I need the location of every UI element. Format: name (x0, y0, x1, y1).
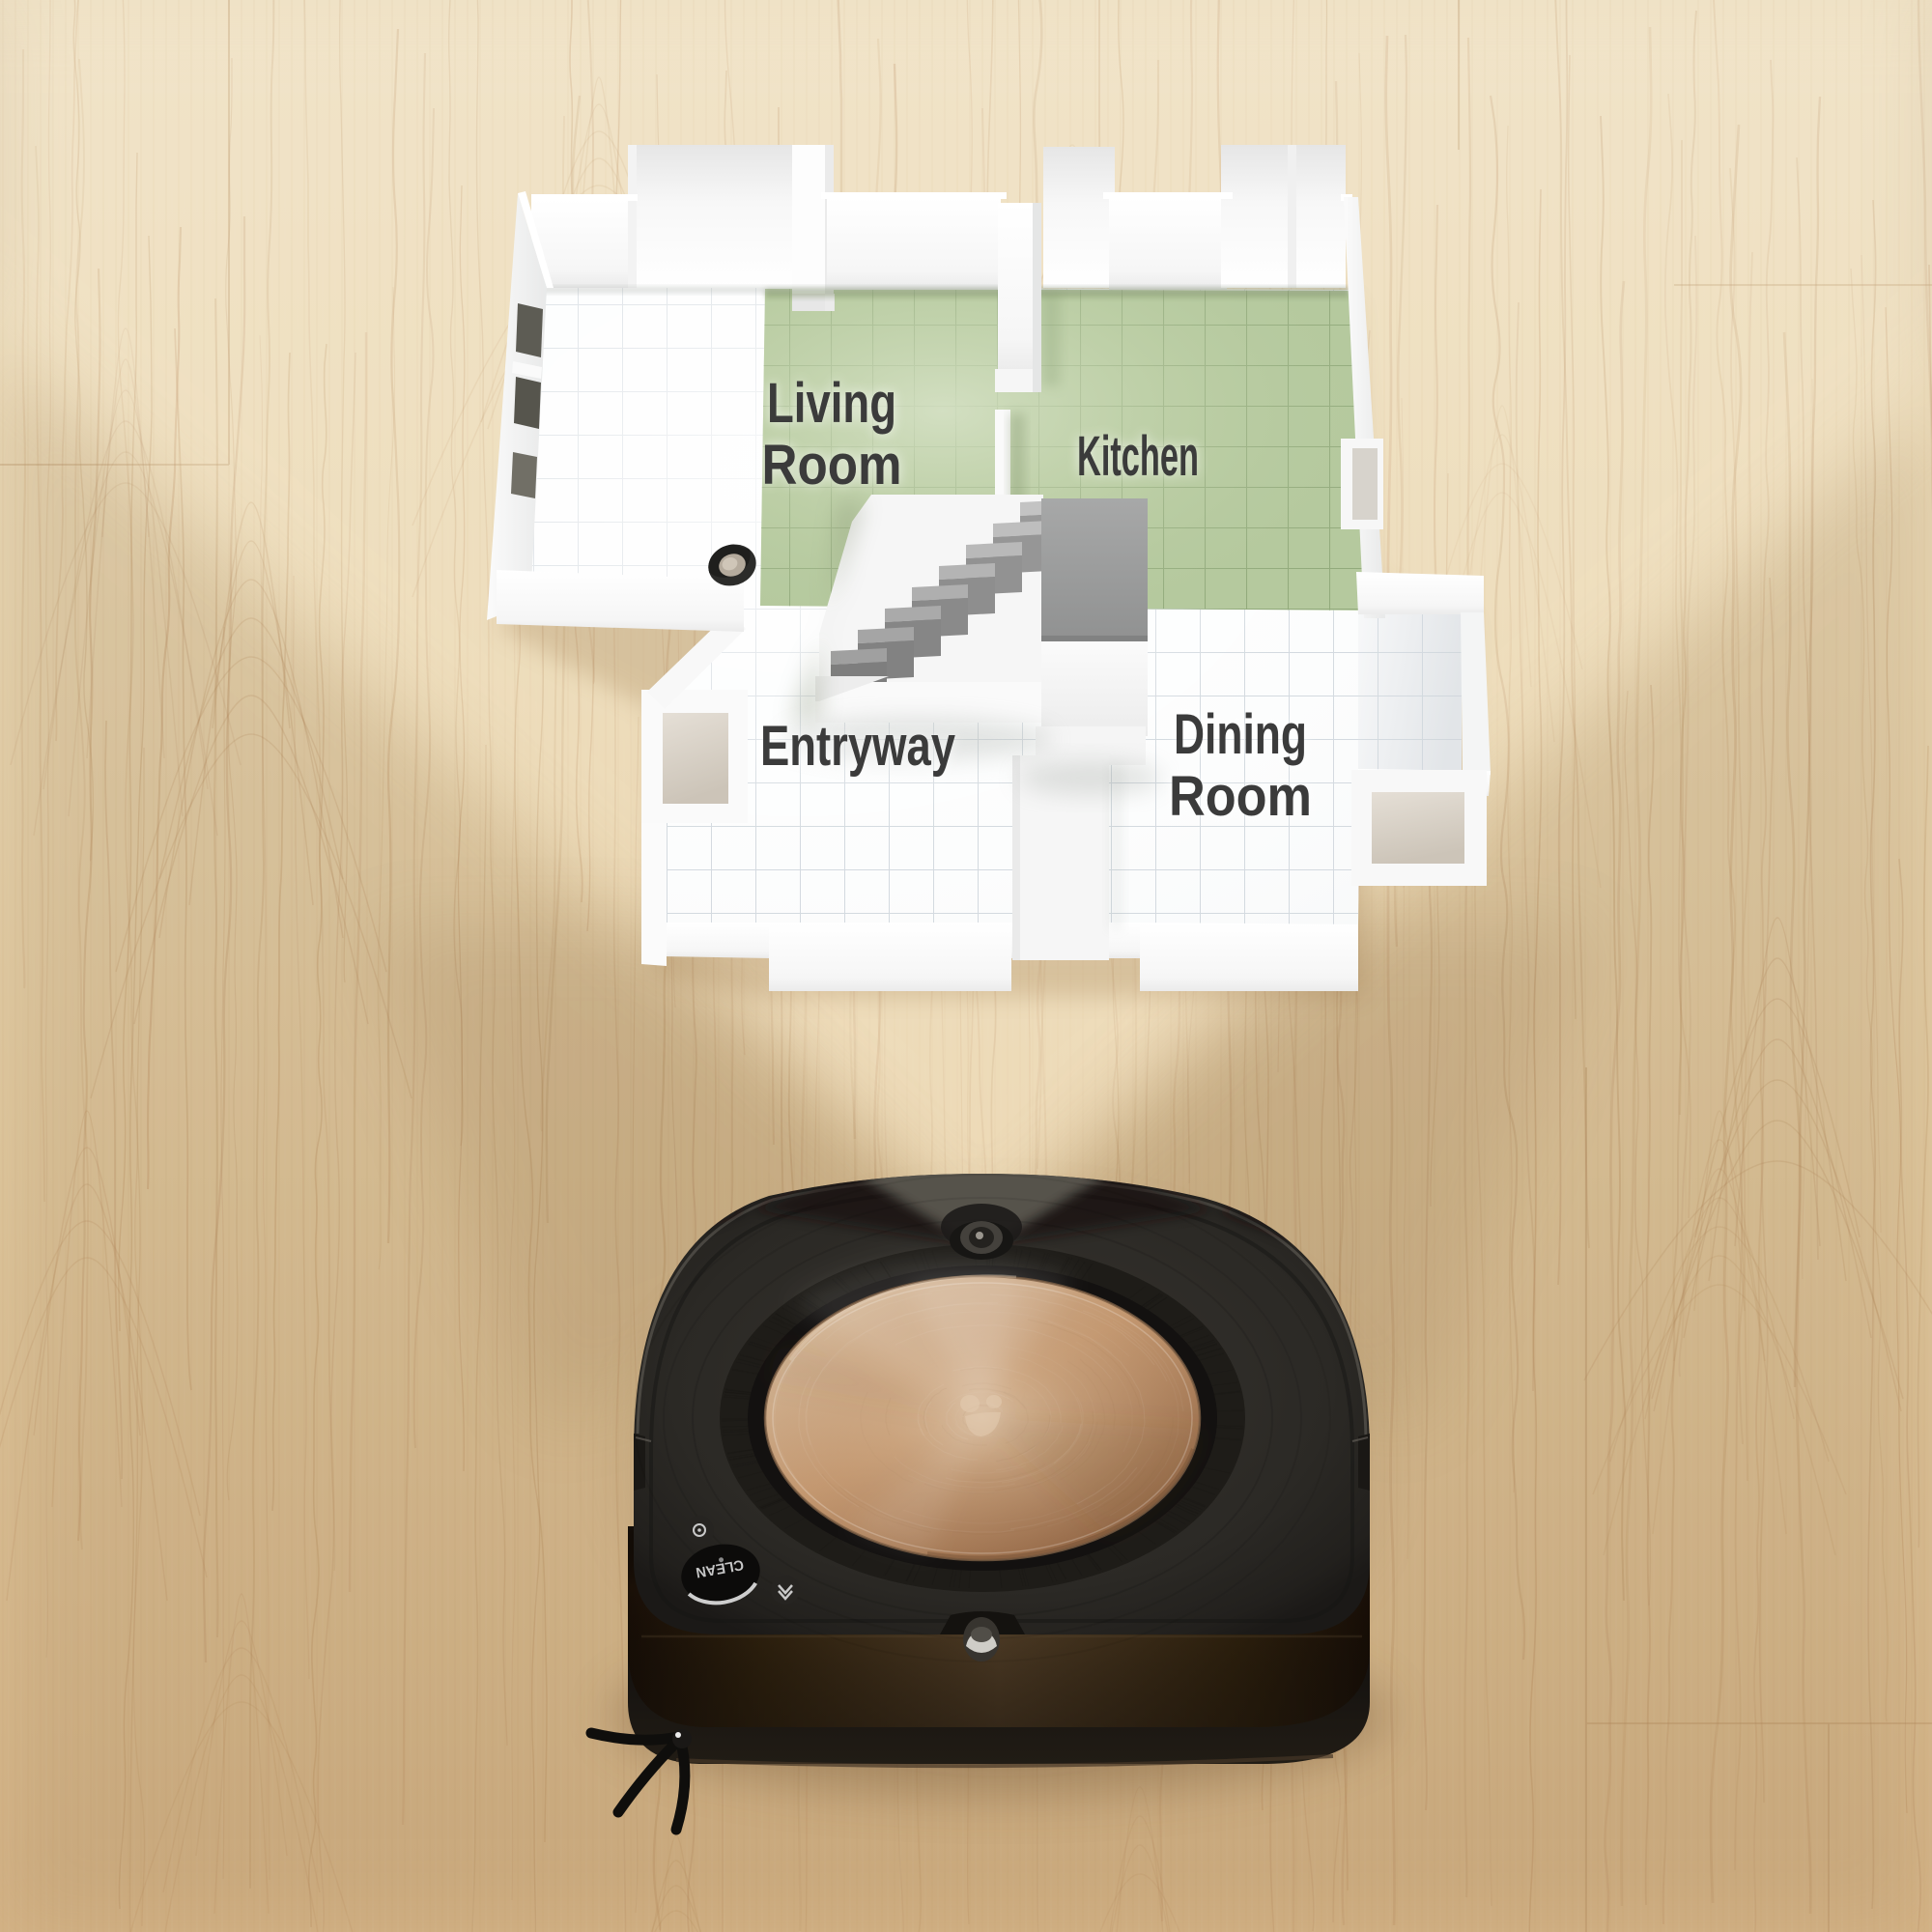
svg-text:Kitchen: Kitchen (1077, 425, 1199, 488)
svg-text:Dining: Dining (1174, 703, 1307, 766)
svg-text:Living: Living (767, 372, 896, 435)
svg-text:Room: Room (1169, 765, 1312, 828)
svg-text:Room: Room (762, 434, 902, 497)
svg-text:Entryway: Entryway (760, 715, 955, 778)
